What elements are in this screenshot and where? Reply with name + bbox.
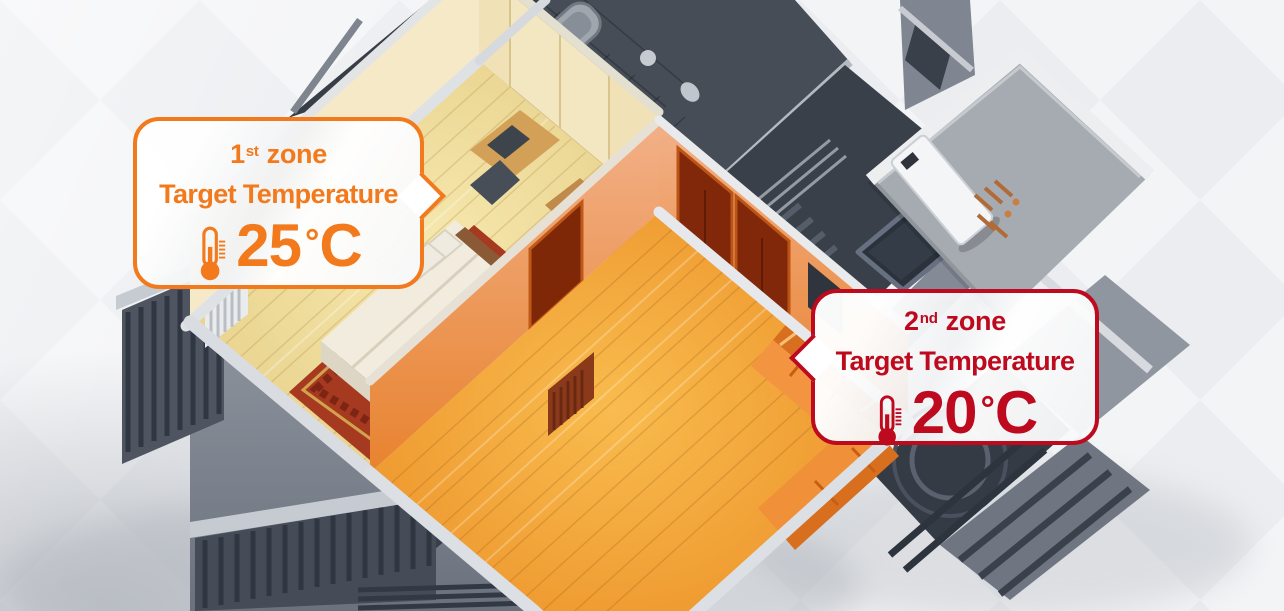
zone2-temperature: 20°C bbox=[912, 381, 1038, 453]
zone1-callout: 1stzone Target Temperature 25°C bbox=[133, 117, 424, 289]
zone1-subtitle: Target Temperature bbox=[137, 177, 420, 211]
zone1-temperature: 25°C bbox=[236, 214, 362, 286]
zone2-number: 2 bbox=[904, 306, 919, 336]
thermometer-icon bbox=[195, 225, 227, 283]
zone1-number: 1 bbox=[230, 139, 245, 169]
degree-symbol: ° bbox=[981, 388, 994, 429]
zone2-title: 2ndzone bbox=[815, 303, 1095, 344]
temperature-unit: C bbox=[995, 379, 1037, 446]
zone1-ordinal: st bbox=[246, 143, 259, 160]
zone2-callout: 2ndzone Target Temperature 20°C bbox=[811, 289, 1099, 445]
temperature-unit: C bbox=[319, 212, 361, 279]
zone-heating-banner: 1stzone Target Temperature 25°C 2ndzone … bbox=[0, 0, 1284, 611]
zone1-word: zone bbox=[267, 139, 327, 169]
zone2-ordinal: nd bbox=[920, 310, 938, 327]
sink bbox=[640, 50, 656, 66]
zone1-temperature-line: 25°C bbox=[137, 214, 420, 286]
zone1-title: 1stzone bbox=[137, 136, 420, 177]
degree-symbol: ° bbox=[305, 221, 318, 262]
zone2-subtitle: Target Temperature bbox=[815, 344, 1095, 378]
thermometer-icon bbox=[873, 394, 903, 448]
zone2-temperature-line: 20°C bbox=[815, 381, 1095, 453]
zone2-word: zone bbox=[946, 306, 1006, 336]
